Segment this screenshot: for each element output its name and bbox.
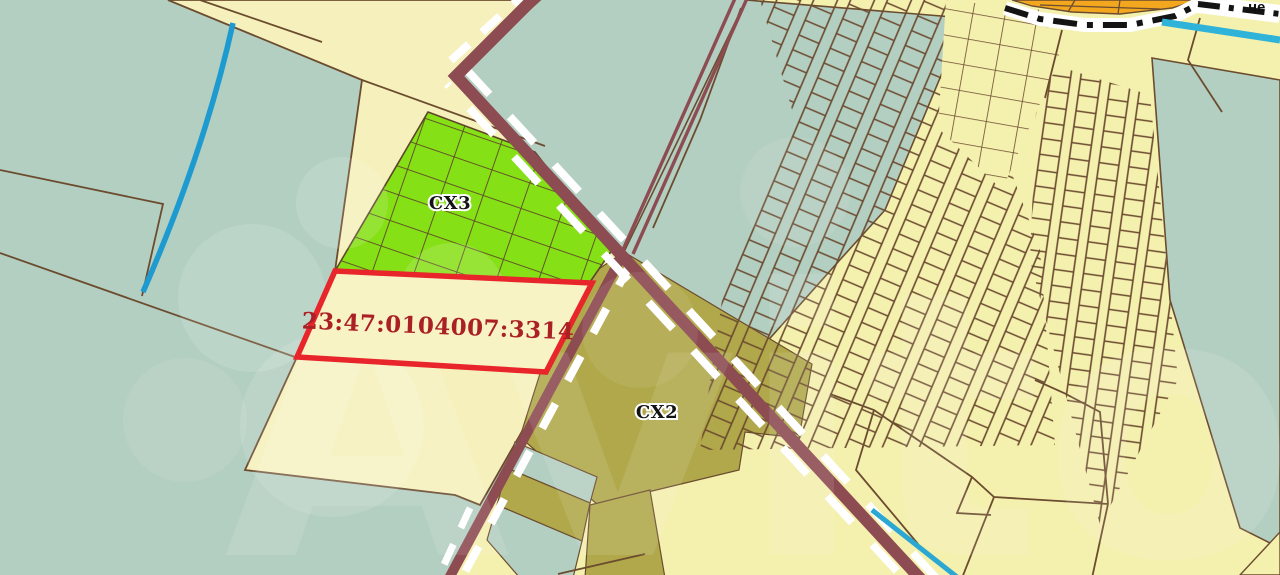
edge-place-label: не xyxy=(1248,0,1265,16)
highlighted-parcel[interactable]: 23:47:0104007:3314 xyxy=(297,271,592,372)
cadastral-map: не Avito 23:47:0104007:3314 СХ3 СХ2 xyxy=(0,0,1280,575)
watermark-text: Avito xyxy=(224,213,1280,575)
zone-cx2-label: СХ2 xyxy=(636,402,678,423)
map-viewport: не Avito 23:47:0104007:3314 СХ3 СХ2 xyxy=(0,0,1280,575)
zone-cx3-label: СХ3 xyxy=(429,193,471,214)
